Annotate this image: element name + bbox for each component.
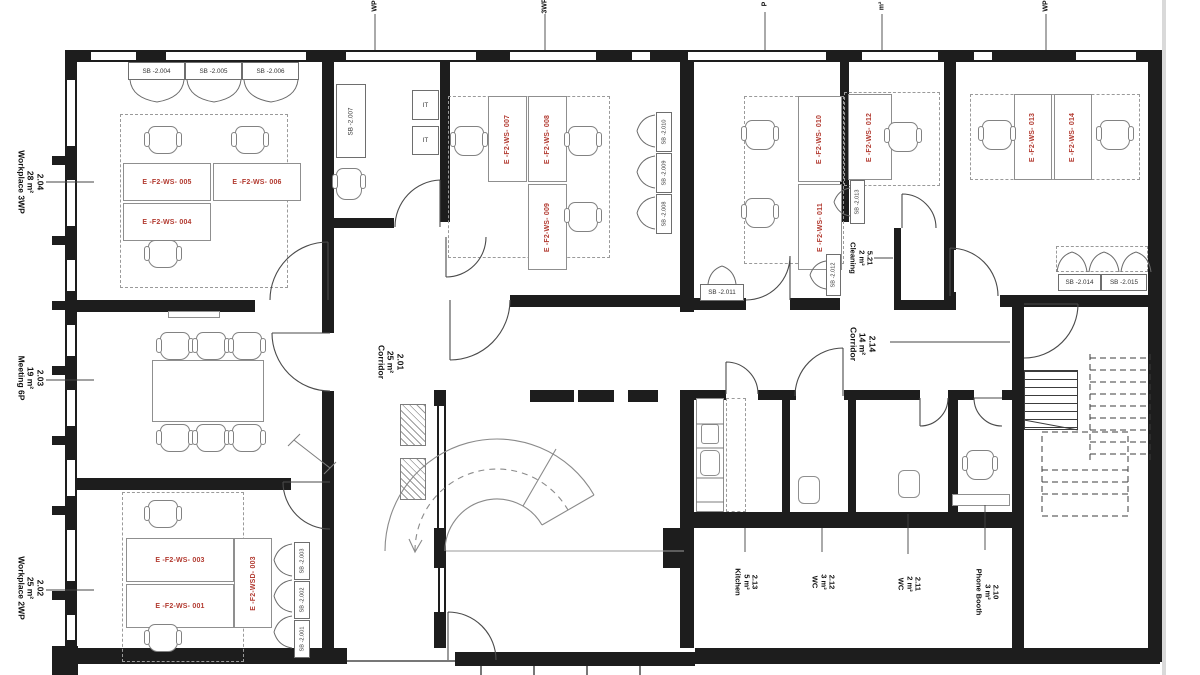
wall xyxy=(455,652,695,666)
wall xyxy=(77,300,255,312)
workstation-label: E -F2-WSD- 003 xyxy=(250,556,257,611)
toilet xyxy=(898,470,920,498)
wall xyxy=(1012,300,1024,655)
wall xyxy=(1000,295,1148,307)
sideboard: SB -2.010 xyxy=(656,112,672,152)
it-label: IT xyxy=(423,102,429,109)
room-label-2-13: 2.13 5 m² Kitchen xyxy=(733,568,758,596)
wall xyxy=(52,436,65,445)
sideboard-zone xyxy=(1056,246,1148,272)
room-number: 2.02 xyxy=(35,580,45,597)
desk: E -F2-WS- 004 xyxy=(123,203,211,241)
workstation-label: E -F2-WS- 008 xyxy=(544,114,551,163)
room-number: 5.21 xyxy=(865,251,873,266)
wall xyxy=(306,50,346,62)
sideboard: SB -2.006 xyxy=(242,62,299,80)
sideboard-label: SB -2.013 xyxy=(855,190,861,215)
room-label-2-03: 2.03 19 m² Meeting 6P xyxy=(16,356,45,401)
chair xyxy=(232,332,262,360)
meeting-table xyxy=(152,360,264,422)
chair xyxy=(745,120,775,150)
desk: E -F2-WS- 007 xyxy=(488,96,527,182)
wall xyxy=(437,406,446,530)
wall xyxy=(434,390,446,406)
room-area: 25 m² xyxy=(25,577,35,599)
workstation-label: E -F2-WS- 001 xyxy=(155,603,204,610)
room-label-2-12: 2.12 3 m² WC xyxy=(810,574,835,589)
room-name: Meeting 6P xyxy=(16,356,26,401)
sideboard: SB -2.013 xyxy=(850,180,865,224)
wall xyxy=(65,226,77,260)
sideboard: SB -2.009 xyxy=(656,153,672,193)
workstation-label: E -F2-WS- 007 xyxy=(504,114,511,163)
desk: E -F2-WSD- 003 xyxy=(234,538,272,628)
room-label-2-11: 2.11 2 m² WC xyxy=(896,576,921,591)
room-area: 28 m² xyxy=(25,171,35,193)
room-label-2-14: 2.14 14 m² Corridor xyxy=(848,327,877,361)
wall xyxy=(680,390,694,648)
desk: E -F2-WS- 009 xyxy=(528,184,567,270)
wall xyxy=(65,356,77,390)
chair xyxy=(148,500,178,528)
room-name: Kitchen xyxy=(733,568,741,596)
room-name: Cleaning xyxy=(848,242,856,274)
wall xyxy=(782,398,790,512)
wall xyxy=(322,478,334,660)
room-label-2-01: 2.01 25 m² Corridor xyxy=(376,345,405,379)
stair-flight xyxy=(1024,370,1078,430)
wall xyxy=(476,50,510,62)
wall xyxy=(1002,390,1012,400)
sideboard: SB -2.015 xyxy=(1101,274,1147,291)
it-label: IT xyxy=(423,137,429,144)
grid-tick xyxy=(533,666,535,675)
desk: E -F2-WS- 003 xyxy=(126,538,234,582)
wall xyxy=(894,228,901,308)
wall xyxy=(510,295,680,307)
wall xyxy=(347,660,455,662)
sideboard: SB -2.007 xyxy=(336,84,366,158)
chair xyxy=(148,240,178,268)
wall xyxy=(628,390,658,402)
sideboard-label: SB -2.003 xyxy=(299,549,305,574)
sideboard-label: SB -2.012 xyxy=(831,263,837,288)
desk: E -F2-WS- 014 xyxy=(1054,94,1092,180)
wall xyxy=(65,146,77,180)
wall xyxy=(663,528,691,568)
chair xyxy=(148,624,178,652)
it-box: IT xyxy=(412,126,439,155)
room-number: 2.12 xyxy=(827,575,835,590)
sideboard: SB -2.014 xyxy=(1058,274,1101,291)
wall xyxy=(790,298,840,310)
wall xyxy=(694,512,1012,528)
sideboard-label: SB -2.002 xyxy=(299,588,305,613)
sideboard: SB -2.004 xyxy=(128,62,185,80)
room-label-2-04: 2.04 28 m² Workplace 3WP xyxy=(16,150,45,214)
cutoff-room-label: WP xyxy=(1043,0,1050,11)
wall xyxy=(530,390,574,402)
sideboard-label: SB -2.001 xyxy=(299,627,305,652)
sideboard: SB -2.012 xyxy=(826,254,841,296)
floor-plan: E -F2-WS- 005 E -F2-WS- 006 E -F2-WS- 00… xyxy=(0,0,1200,675)
kitchen-hob xyxy=(701,424,719,444)
wall xyxy=(578,390,614,402)
desk: E -F2-WS- 006 xyxy=(213,163,301,201)
phone-booth-desk xyxy=(952,494,1010,506)
workstation-label: E -F2-WS- 006 xyxy=(232,179,281,186)
wall xyxy=(52,236,65,245)
sideboard-strip xyxy=(168,311,220,318)
chair xyxy=(454,126,484,156)
wall xyxy=(322,312,334,333)
wall xyxy=(680,62,694,312)
wall xyxy=(434,612,446,648)
grid-tick xyxy=(586,666,588,675)
workstation-label: E -F2-WS- 011 xyxy=(817,203,824,252)
sideboard: SB -2.002 xyxy=(294,581,310,619)
chair xyxy=(160,424,190,452)
chair xyxy=(232,424,262,452)
room-area: 2 m² xyxy=(857,250,865,265)
room-name: WC xyxy=(810,576,818,589)
room-label-5-21: 5.21 2 m² Cleaning xyxy=(848,242,873,274)
radiator xyxy=(400,404,426,446)
workstation-label: E -F2-WS- 005 xyxy=(142,179,191,186)
kitchen-coatstand-lines xyxy=(288,424,724,502)
grid-tick xyxy=(480,666,482,675)
chair xyxy=(888,122,918,152)
workstation-label: E -F2-WS- 010 xyxy=(817,114,824,163)
wall xyxy=(1136,50,1162,62)
kitchen-upper-cabinet xyxy=(726,398,746,512)
cutoff-room-label: 3WP xyxy=(542,0,549,14)
sideboard: SB -2.003 xyxy=(294,542,310,580)
radiator xyxy=(400,458,426,500)
sideboard: SB -2.011 xyxy=(700,284,744,301)
wall xyxy=(758,390,796,400)
room-area: 3 m² xyxy=(819,574,827,589)
wall xyxy=(52,646,78,675)
room-area: 19 m² xyxy=(25,367,35,389)
wall xyxy=(695,648,1160,664)
wall xyxy=(334,218,394,228)
wall xyxy=(1148,62,1162,662)
sideboard-label: SB -2.007 xyxy=(348,107,355,135)
room-area: 14 m² xyxy=(857,333,867,355)
wall xyxy=(938,50,974,62)
wall xyxy=(944,228,954,310)
wall xyxy=(77,478,291,490)
chair xyxy=(982,120,1012,150)
sideboard-label: SB -2.004 xyxy=(142,68,170,75)
wall xyxy=(992,50,1076,62)
chair xyxy=(160,332,190,360)
wall xyxy=(944,62,956,250)
sideboard: SB -2.005 xyxy=(185,62,242,80)
wall xyxy=(434,528,446,568)
wall xyxy=(826,50,862,62)
room-number: 2.14 xyxy=(867,336,877,353)
sideboard-label: SB -2.011 xyxy=(708,289,736,296)
workstation-label: E -F2-WS- 014 xyxy=(1070,112,1077,161)
wall xyxy=(848,398,856,512)
sideboard-label: SB -2.009 xyxy=(661,161,667,186)
sideboard-label: SB -2.015 xyxy=(1110,279,1138,286)
it-box: IT xyxy=(412,90,439,120)
chair xyxy=(568,202,598,232)
chair xyxy=(196,332,226,360)
room-number: 2.04 xyxy=(35,174,45,191)
cutoff-room-label: P xyxy=(762,2,769,7)
wall xyxy=(322,391,334,478)
cutoff-room-label: m² xyxy=(879,2,886,11)
chair xyxy=(336,168,362,200)
room-number: 2.11 xyxy=(913,577,921,591)
wall xyxy=(650,50,688,62)
wall xyxy=(52,506,65,515)
room-number: 2.13 xyxy=(750,575,758,590)
sideboard-label: SB -2.014 xyxy=(1065,279,1093,286)
toilet xyxy=(798,476,820,504)
room-area: 2 m² xyxy=(905,576,913,591)
desk: E -F2-WS- 008 xyxy=(528,96,567,182)
room-label-2-10: 2.10 3 m² Phone Booth xyxy=(974,569,999,616)
workstation-label: E -F2-WS- 013 xyxy=(1030,112,1037,161)
chair xyxy=(235,126,265,154)
wall xyxy=(52,366,65,375)
desk: E -F2-WS- 001 xyxy=(126,584,234,628)
chair xyxy=(745,198,775,228)
wall xyxy=(65,426,77,460)
chair xyxy=(148,126,178,154)
room-name: Corridor xyxy=(848,327,858,361)
sideboard: SB -2.008 xyxy=(656,194,672,234)
sideboard-label: SB -2.010 xyxy=(661,120,667,145)
room-area: 5 m² xyxy=(742,574,750,589)
room-area: 3 m² xyxy=(983,584,991,599)
workstation-label: E -F2-WS- 012 xyxy=(867,112,874,161)
room-number: 2.10 xyxy=(991,585,999,600)
wall xyxy=(65,50,77,80)
chair xyxy=(1100,120,1130,150)
room-name: Corridor xyxy=(376,345,386,379)
room-label-2-02: 2.02 25 m² Workplace 2WP xyxy=(16,556,45,620)
wall xyxy=(65,496,77,530)
wall xyxy=(52,301,65,310)
room-name: Workplace 3WP xyxy=(16,150,26,214)
wall xyxy=(52,156,65,165)
desk: E -F2-WS- 005 xyxy=(123,163,211,201)
sideboard-label: SB -2.005 xyxy=(199,68,227,75)
room-name: Workplace 2WP xyxy=(16,556,26,620)
workstation-label: E -F2-WS- 009 xyxy=(544,202,551,251)
room-area: 25 m² xyxy=(385,351,395,373)
fan-stair xyxy=(385,439,684,552)
wall xyxy=(136,50,166,62)
chair xyxy=(196,424,226,452)
desk: E -F2-WS- 013 xyxy=(1014,94,1052,180)
room-name: Phone Booth xyxy=(974,569,982,616)
grid-tick xyxy=(639,666,641,675)
room-name: WC xyxy=(896,578,904,591)
chair xyxy=(568,126,598,156)
wall xyxy=(438,566,446,614)
sideboard-label: SB -2.008 xyxy=(661,202,667,227)
wall xyxy=(65,291,77,325)
chair xyxy=(966,450,994,480)
room-number: 2.01 xyxy=(395,354,405,371)
wall xyxy=(52,591,65,600)
wall xyxy=(65,581,77,615)
sideboard-label: SB -2.006 xyxy=(256,68,284,75)
sideboard: SB -2.001 xyxy=(294,620,310,658)
room-number: 2.03 xyxy=(35,370,45,387)
workstation-label: E -F2-WS- 004 xyxy=(142,219,191,226)
kitchen-sink xyxy=(700,450,720,476)
workstation-label: E -F2-WS- 003 xyxy=(155,557,204,564)
cutoff-room-label: WP xyxy=(372,0,379,11)
page-edge xyxy=(1162,0,1166,675)
wall xyxy=(596,50,632,62)
desk: E -F2-WS- 010 xyxy=(798,96,842,182)
